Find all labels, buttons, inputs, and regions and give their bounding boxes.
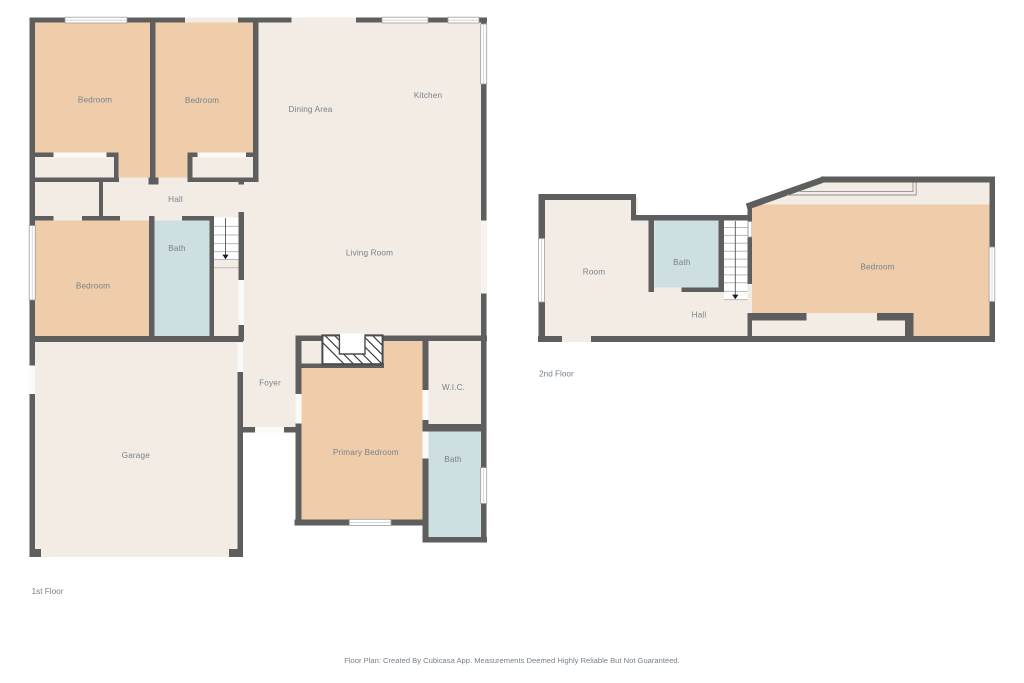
svg-text:Foyer: Foyer	[259, 379, 281, 388]
svg-text:2nd Floor: 2nd Floor	[539, 369, 574, 378]
svg-text:Primary Bedroom: Primary Bedroom	[333, 448, 399, 457]
svg-text:Hall: Hall	[168, 195, 183, 204]
svg-text:Bath: Bath	[168, 244, 186, 253]
svg-text:Bedroom: Bedroom	[185, 96, 219, 105]
svg-text:W.I.C.: W.I.C.	[442, 383, 465, 392]
svg-text:Hall: Hall	[692, 311, 707, 320]
svg-text:Bedroom: Bedroom	[76, 282, 110, 291]
svg-text:Kitchen: Kitchen	[414, 91, 443, 100]
svg-text:Bath: Bath	[673, 258, 691, 267]
svg-text:Living Room: Living Room	[346, 248, 393, 257]
svg-text:1st Floor: 1st Floor	[32, 587, 64, 596]
svg-text:Garage: Garage	[122, 451, 151, 460]
svg-text:Bath: Bath	[444, 455, 462, 464]
svg-text:Room: Room	[583, 268, 605, 277]
svg-text:Dining Area: Dining Area	[289, 105, 333, 114]
svg-text:Bedroom: Bedroom	[78, 95, 112, 104]
svg-text:Floor Plan: Created By Cubicas: Floor Plan: Created By Cubicasa App. Mea…	[344, 656, 680, 665]
svg-text:Bedroom: Bedroom	[860, 263, 894, 272]
